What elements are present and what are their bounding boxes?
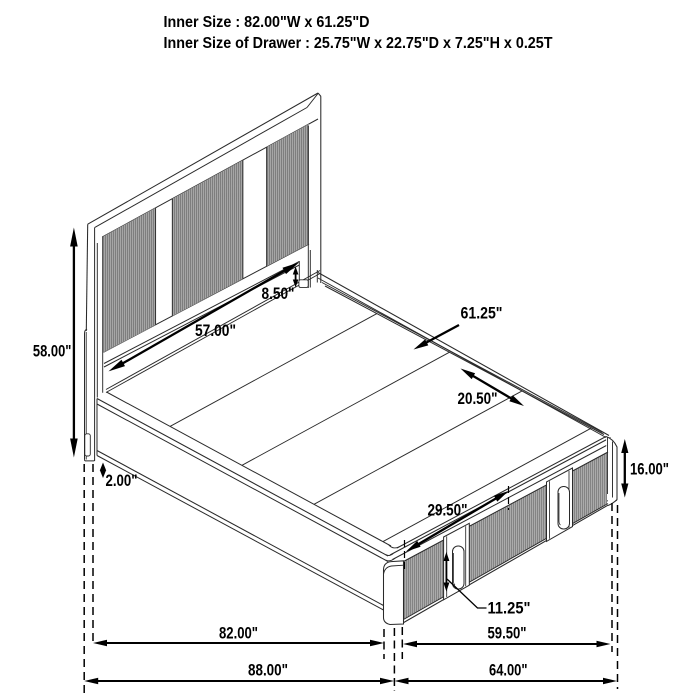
svg-text:Inner Size of Drawer : 25.75"W: Inner Size of Drawer : 25.75"W x 22.75"D…	[164, 35, 553, 52]
svg-text:8.50": 8.50"	[262, 284, 295, 303]
svg-text:11.25": 11.25"	[488, 599, 531, 618]
svg-text:61.25": 61.25"	[461, 304, 503, 323]
svg-text:29.50": 29.50"	[428, 501, 468, 520]
svg-text:2.00": 2.00"	[106, 471, 138, 490]
svg-text:Inner Size : 82.00"W x 61.25"D: Inner Size : 82.00"W x 61.25"D	[164, 14, 370, 31]
svg-text:57.00": 57.00"	[195, 321, 236, 340]
svg-text:59.50": 59.50"	[488, 624, 527, 643]
svg-text:64.00": 64.00"	[489, 661, 528, 680]
svg-text:58.00": 58.00"	[33, 342, 72, 361]
svg-text:88.00": 88.00"	[248, 661, 288, 680]
svg-text:82.00": 82.00"	[219, 624, 258, 643]
svg-text:20.50": 20.50"	[458, 389, 498, 408]
svg-text:16.00": 16.00"	[630, 460, 669, 479]
